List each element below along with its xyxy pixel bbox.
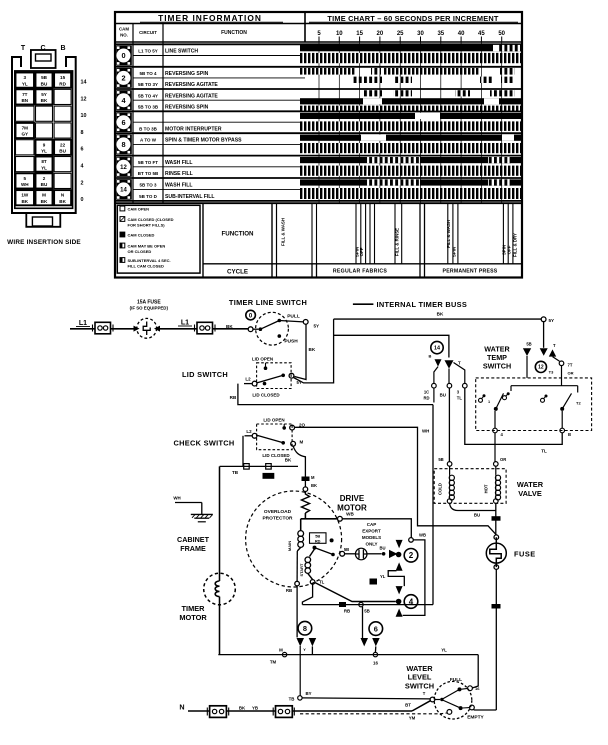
svg-text:BY: BY [305,691,311,696]
svg-text:VALVE: VALVE [518,489,542,498]
svg-text:RINSE FILL: RINSE FILL [165,171,193,177]
svg-text:6: 6 [374,624,378,633]
svg-text:Y: Y [303,648,306,652]
svg-text:35: 35 [437,31,444,37]
svg-text:CYCLE: CYCLE [227,269,248,276]
svg-text:YL: YL [22,81,28,86]
svg-text:A TO W: A TO W [140,138,157,143]
svg-text:15: 15 [60,75,66,80]
svg-text:FOR SHORT FILLS): FOR SHORT FILLS) [128,223,166,228]
svg-text:YB: YB [252,705,258,710]
svg-text:WASH FILL: WASH FILL [165,160,192,166]
svg-text:30: 30 [417,31,424,37]
svg-text:MODELS: MODELS [362,535,381,540]
svg-text:EMPTY: EMPTY [467,715,484,721]
svg-text:BU: BU [41,81,48,86]
svg-text:YM: YM [409,716,416,721]
svg-text:50: 50 [498,31,505,37]
svg-text:5Y: 5Y [41,92,47,97]
svg-text:T2: T2 [576,401,581,406]
svg-text:TIMER: TIMER [182,604,206,613]
svg-text:WATER: WATER [406,664,433,673]
svg-text:TIMER LINE SWITCH: TIMER LINE SWITCH [229,298,307,307]
svg-text:BU: BU [41,182,48,187]
svg-text:15: 15 [356,31,363,37]
svg-text:BK: BK [41,199,48,204]
svg-text:FILL & RINSE: FILL & RINSE [395,228,400,256]
svg-text:WATER: WATER [517,480,544,489]
svg-text:22: 22 [60,142,66,147]
svg-text:PUSH: PUSH [284,339,298,345]
svg-text:BK: BK [239,705,246,710]
svg-text:BK: BK [285,458,292,463]
svg-text:M: M [42,193,46,198]
svg-text:5: 5 [24,176,27,181]
svg-text:REVERSING AGITATE: REVERSING AGITATE [165,93,218,99]
svg-text:YL: YL [41,165,47,170]
svg-text:40: 40 [458,31,465,37]
svg-text:1: 1 [488,400,490,404]
svg-text:RB: RB [344,609,350,614]
svg-text:BU: BU [379,546,385,551]
svg-text:BT TO 5B: BT TO 5B [138,171,159,176]
svg-text:OFF: OFF [359,247,364,256]
svg-text:T: T [21,45,26,52]
svg-text:BK: BK [21,199,28,204]
svg-text:SWITCH: SWITCH [405,681,434,690]
svg-text:OR CLOSED: OR CLOSED [128,249,152,254]
svg-text:TB: TB [232,470,239,475]
svg-text:14: 14 [434,346,440,352]
svg-text:OVERLOAD: OVERLOAD [264,509,292,515]
svg-text:FILL & DRY: FILL & DRY [513,233,518,257]
svg-text:TM: TM [270,660,277,665]
svg-text:BK: BK [226,324,233,329]
svg-text:12: 12 [81,96,87,102]
svg-text:(IF SO EQUIPPED): (IF SO EQUIPPED) [130,306,169,311]
svg-text:YL: YL [380,574,386,579]
svg-text:EXPORT: EXPORT [362,529,381,534]
svg-text:WH: WH [173,496,180,501]
svg-text:B: B [429,354,432,359]
svg-text:B: B [568,432,571,437]
svg-text:PERMANENT PRESS: PERMANENT PRESS [443,269,498,275]
svg-text:TL: TL [457,396,463,401]
svg-text:YL: YL [441,648,447,653]
svg-text:GY: GY [21,132,28,137]
svg-text:20: 20 [377,31,384,37]
svg-text:REVERSING AGITATE: REVERSING AGITATE [165,82,218,88]
svg-text:5B TO D: 5B TO D [139,194,157,199]
svg-text:CAP: CAP [367,522,377,527]
svg-text:COLD: COLD [438,483,443,495]
svg-text:5B TO FT: 5B TO FT [138,160,158,165]
svg-text:LEVEL: LEVEL [408,673,432,682]
svg-text:CAM OPEN: CAM OPEN [128,207,150,212]
svg-text:FUNCTION: FUNCTION [221,30,247,36]
svg-text:MOTOR INTERRUPTER: MOTOR INTERRUPTER [165,127,222,133]
svg-text:FULL: FULL [450,677,462,683]
svg-text:LID OPEN: LID OPEN [252,356,273,361]
svg-text:16: 16 [373,661,378,666]
svg-text:4: 4 [81,164,84,170]
svg-text:START: START [299,563,304,577]
svg-text:TL: TL [319,580,325,585]
svg-text:REGULAR FABRICS: REGULAR FABRICS [333,269,388,275]
svg-text:6: 6 [81,147,84,153]
svg-text:7M: 7M [22,126,29,131]
svg-text:14: 14 [81,80,87,86]
svg-text:45: 45 [478,31,485,37]
svg-text:BK: BK [437,312,444,317]
svg-text:T3: T3 [549,370,554,375]
svg-text:CIRCUIT: CIRCUIT [139,30,157,35]
svg-text:5B TO 4Y: 5B TO 4Y [138,93,158,98]
svg-text:5B: 5B [526,342,531,347]
svg-text:T: T [423,691,426,696]
svg-text:5B: 5B [438,457,443,462]
svg-text:SUB-INTERVAL 4 SEC.: SUB-INTERVAL 4 SEC. [128,258,171,263]
svg-text:FILL & WASH: FILL & WASH [281,218,286,246]
svg-text:0: 0 [121,51,125,60]
svg-text:CABINET: CABINET [177,535,210,544]
svg-text:RB: RB [230,395,237,400]
svg-text:M: M [311,475,315,480]
svg-text:M: M [300,440,304,445]
svg-text:CHECK SWITCH: CHECK SWITCH [173,439,234,448]
svg-text:TL: TL [541,449,547,454]
svg-text:B TO 3B: B TO 3B [139,127,157,132]
svg-text:PULL: PULL [287,314,300,320]
svg-text:LID SWITCH: LID SWITCH [182,370,228,379]
svg-text:RD: RD [59,81,66,86]
svg-text:WIRE INSERTION SIDE: WIRE INSERTION SIDE [7,239,81,246]
svg-text:BK: BK [311,483,317,488]
svg-text:MOTOR: MOTOR [179,613,207,622]
svg-text:T: T [458,361,461,366]
svg-text:LID OPEN: LID OPEN [263,418,284,423]
svg-text:SPIN & TIMER MOTOR BYPASS: SPIN & TIMER MOTOR BYPASS [165,138,242,144]
svg-text:7T: 7T [568,363,573,368]
svg-text:BU: BU [59,149,66,154]
svg-text:RB: RB [286,588,292,593]
svg-text:5B: 5B [41,75,48,80]
svg-text:8: 8 [81,130,84,136]
svg-text:INTERNAL TIMER BUSS: INTERNAL TIMER BUSS [377,300,468,309]
svg-text:OFF: OFF [507,245,512,254]
svg-text:N: N [179,703,184,712]
svg-text:WB: WB [419,533,426,538]
svg-text:25: 25 [397,31,404,37]
svg-text:C: C [40,45,45,52]
svg-text:L2: L2 [245,377,251,382]
svg-text:BK: BK [59,199,66,204]
svg-text:8: 8 [121,140,125,149]
svg-text:1W: 1W [21,193,29,198]
svg-text:MAIN: MAIN [287,541,292,551]
svg-text:NO.: NO. [120,33,128,38]
svg-text:10: 10 [336,31,343,37]
svg-text:5B TO 3: 5B TO 3 [140,182,157,187]
svg-text:0: 0 [81,197,84,203]
svg-text:T: T [553,343,556,348]
svg-text:SUB-INTERVAL FILL: SUB-INTERVAL FILL [165,194,215,200]
svg-text:B: B [60,45,65,52]
svg-text:FUSE: FUSE [514,550,536,559]
svg-text:FUNCTION: FUNCTION [222,231,254,238]
svg-text:3: 3 [24,75,27,80]
svg-text:L1: L1 [181,320,189,327]
svg-text:5Y: 5Y [297,380,302,385]
svg-text:WH: WH [422,429,429,434]
svg-text:TIMER INFORMATION: TIMER INFORMATION [158,13,262,23]
svg-text:8: 8 [303,624,307,633]
svg-text:TIME CHART – 60 SECONDS PER IN: TIME CHART – 60 SECONDS PER INCREMENT [327,14,499,23]
svg-text:12: 12 [538,365,544,371]
svg-text:OR: OR [500,457,506,462]
svg-text:DRIVE: DRIVE [340,494,365,503]
svg-text:5B: 5B [344,547,349,552]
svg-text:5B TO 3Y: 5B TO 3Y [138,82,158,87]
svg-text:WASH FILL: WASH FILL [165,182,192,188]
svg-text:6: 6 [121,118,125,127]
svg-text:1C: 1C [424,390,429,395]
svg-text:2: 2 [409,551,414,560]
svg-text:L1 TO 5Y: L1 TO 5Y [138,49,157,54]
svg-text:LID CLOSED: LID CLOSED [252,393,280,398]
svg-text:BT: BT [405,703,411,708]
svg-text:FILL & WASH: FILL & WASH [446,220,451,248]
svg-text:HOT: HOT [484,484,489,493]
svg-text:ONLY: ONLY [365,542,377,547]
svg-text:5B TO 4: 5B TO 4 [140,71,157,76]
svg-text:BU: BU [440,393,446,398]
svg-text:TB: TB [289,697,295,702]
svg-text:12: 12 [120,165,127,171]
svg-text:OR: OR [568,371,574,376]
svg-text:RD: RD [423,396,429,401]
svg-text:REVERSING SPIN: REVERSING SPIN [165,105,209,111]
svg-text:BN: BN [21,98,28,103]
svg-text:L2: L2 [246,429,252,434]
svg-text:RD: RD [315,538,321,543]
svg-text:FRAME: FRAME [180,544,206,553]
svg-text:WB: WB [346,512,354,517]
svg-text:YL: YL [41,149,47,154]
svg-text:BK: BK [41,98,48,103]
svg-text:WH: WH [21,182,29,187]
svg-text:SPIN: SPIN [452,247,457,257]
svg-text:7T: 7T [22,92,28,97]
svg-text:5B: 5B [364,609,370,614]
svg-text:10: 10 [81,113,87,119]
svg-text:PROTECTOR: PROTECTOR [262,516,293,522]
svg-text:BU: BU [474,513,480,518]
svg-text:REVERSING SPIN: REVERSING SPIN [165,71,209,77]
svg-text:CAM MAY BE OPEN: CAM MAY BE OPEN [128,244,166,249]
svg-text:CAM CLOSED (CLOSED: CAM CLOSED (CLOSED [128,217,174,222]
svg-text:2: 2 [121,74,125,83]
svg-text:8T: 8T [41,159,47,164]
svg-text:5Y: 5Y [549,318,555,323]
svg-text:2: 2 [43,176,46,181]
svg-text:CAM CLOSED: CAM CLOSED [128,233,155,238]
svg-text:2: 2 [81,180,84,186]
svg-text:5Y: 5Y [314,324,320,329]
svg-text:9: 9 [43,142,46,147]
svg-text:SWITCH: SWITCH [483,362,511,371]
svg-text:BK: BK [309,347,316,352]
svg-text:5B TO 3B: 5B TO 3B [138,105,159,110]
svg-text:M: M [279,648,283,653]
svg-text:L1: L1 [79,320,87,327]
svg-text:LINE SWITCH: LINE SWITCH [165,49,198,55]
svg-text:CAM: CAM [119,27,129,32]
svg-text:FILL CAM CLOSED: FILL CAM CLOSED [128,264,164,269]
svg-text:14: 14 [120,188,127,194]
